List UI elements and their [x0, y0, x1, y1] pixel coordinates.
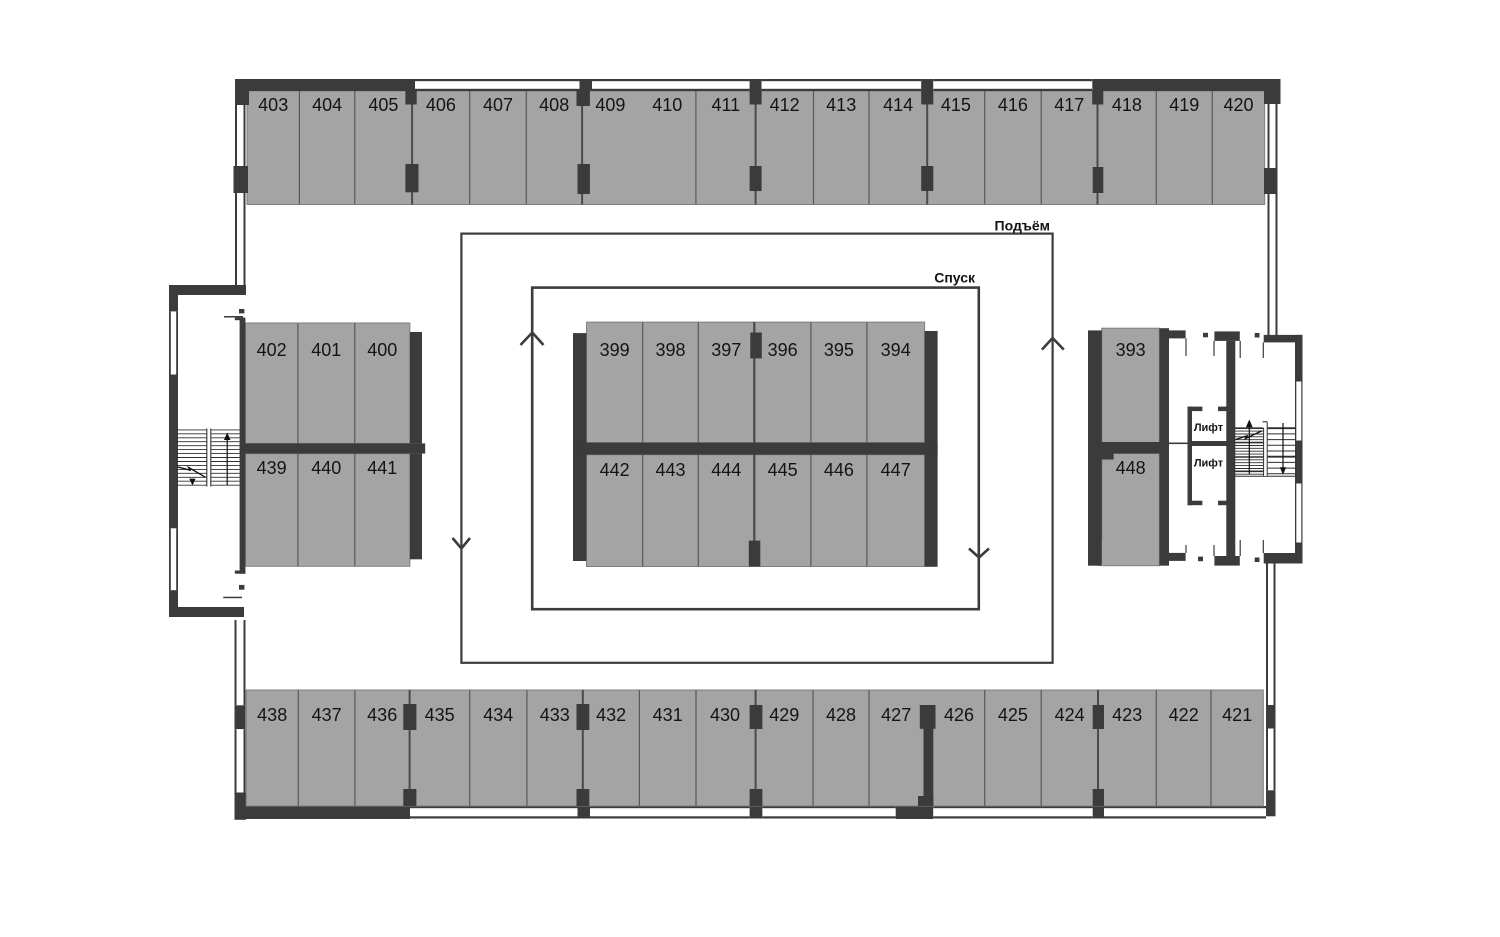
svg-text:446: 446: [824, 460, 854, 480]
svg-text:443: 443: [655, 460, 685, 480]
svg-text:442: 442: [600, 460, 630, 480]
svg-text:428: 428: [826, 705, 856, 725]
svg-text:420: 420: [1223, 95, 1253, 115]
svg-text:408: 408: [539, 95, 569, 115]
svg-text:393: 393: [1116, 340, 1146, 360]
svg-text:438: 438: [257, 705, 287, 725]
svg-text:Спуск: Спуск: [934, 270, 976, 286]
svg-text:435: 435: [425, 705, 455, 725]
svg-text:440: 440: [311, 458, 341, 478]
svg-text:424: 424: [1055, 705, 1085, 725]
svg-text:439: 439: [257, 458, 287, 478]
svg-text:396: 396: [768, 340, 798, 360]
svg-text:445: 445: [768, 460, 798, 480]
svg-text:414: 414: [883, 95, 913, 115]
svg-text:421: 421: [1222, 705, 1252, 725]
svg-text:431: 431: [653, 705, 683, 725]
svg-text:413: 413: [826, 95, 856, 115]
svg-text:411: 411: [711, 95, 740, 115]
svg-text:401: 401: [311, 340, 341, 360]
svg-text:441: 441: [367, 458, 397, 478]
svg-text:425: 425: [998, 705, 1028, 725]
svg-text:418: 418: [1112, 95, 1142, 115]
svg-text:399: 399: [600, 340, 630, 360]
svg-text:419: 419: [1169, 95, 1199, 115]
svg-text:409: 409: [595, 95, 625, 115]
svg-text:444: 444: [711, 460, 741, 480]
svg-text:427: 427: [881, 705, 911, 725]
svg-text:398: 398: [655, 340, 685, 360]
svg-text:448: 448: [1116, 458, 1146, 478]
svg-text:422: 422: [1169, 705, 1199, 725]
svg-text:423: 423: [1112, 705, 1142, 725]
svg-text:397: 397: [711, 340, 741, 360]
svg-text:400: 400: [367, 340, 397, 360]
svg-text:416: 416: [998, 95, 1028, 115]
svg-text:429: 429: [769, 705, 799, 725]
svg-text:426: 426: [944, 705, 974, 725]
svg-text:437: 437: [312, 705, 342, 725]
svg-text:430: 430: [710, 705, 740, 725]
svg-text:433: 433: [540, 705, 570, 725]
svg-text:412: 412: [770, 95, 800, 115]
svg-text:Подъём: Подъём: [995, 218, 1050, 234]
svg-text:406: 406: [426, 95, 456, 115]
svg-text:402: 402: [257, 340, 287, 360]
svg-text:Лифт: Лифт: [1194, 422, 1224, 434]
svg-text:403: 403: [258, 95, 288, 115]
svg-text:404: 404: [312, 95, 342, 115]
svg-text:407: 407: [483, 95, 513, 115]
svg-text:436: 436: [367, 705, 397, 725]
svg-text:432: 432: [596, 705, 626, 725]
svg-text:405: 405: [368, 95, 398, 115]
svg-text:447: 447: [881, 460, 911, 480]
svg-text:417: 417: [1054, 95, 1084, 115]
svg-text:410: 410: [652, 95, 682, 115]
svg-text:394: 394: [881, 340, 911, 360]
svg-text:415: 415: [941, 95, 971, 115]
svg-text:395: 395: [824, 340, 854, 360]
svg-text:Лифт: Лифт: [1194, 458, 1224, 470]
svg-text:434: 434: [483, 705, 513, 725]
